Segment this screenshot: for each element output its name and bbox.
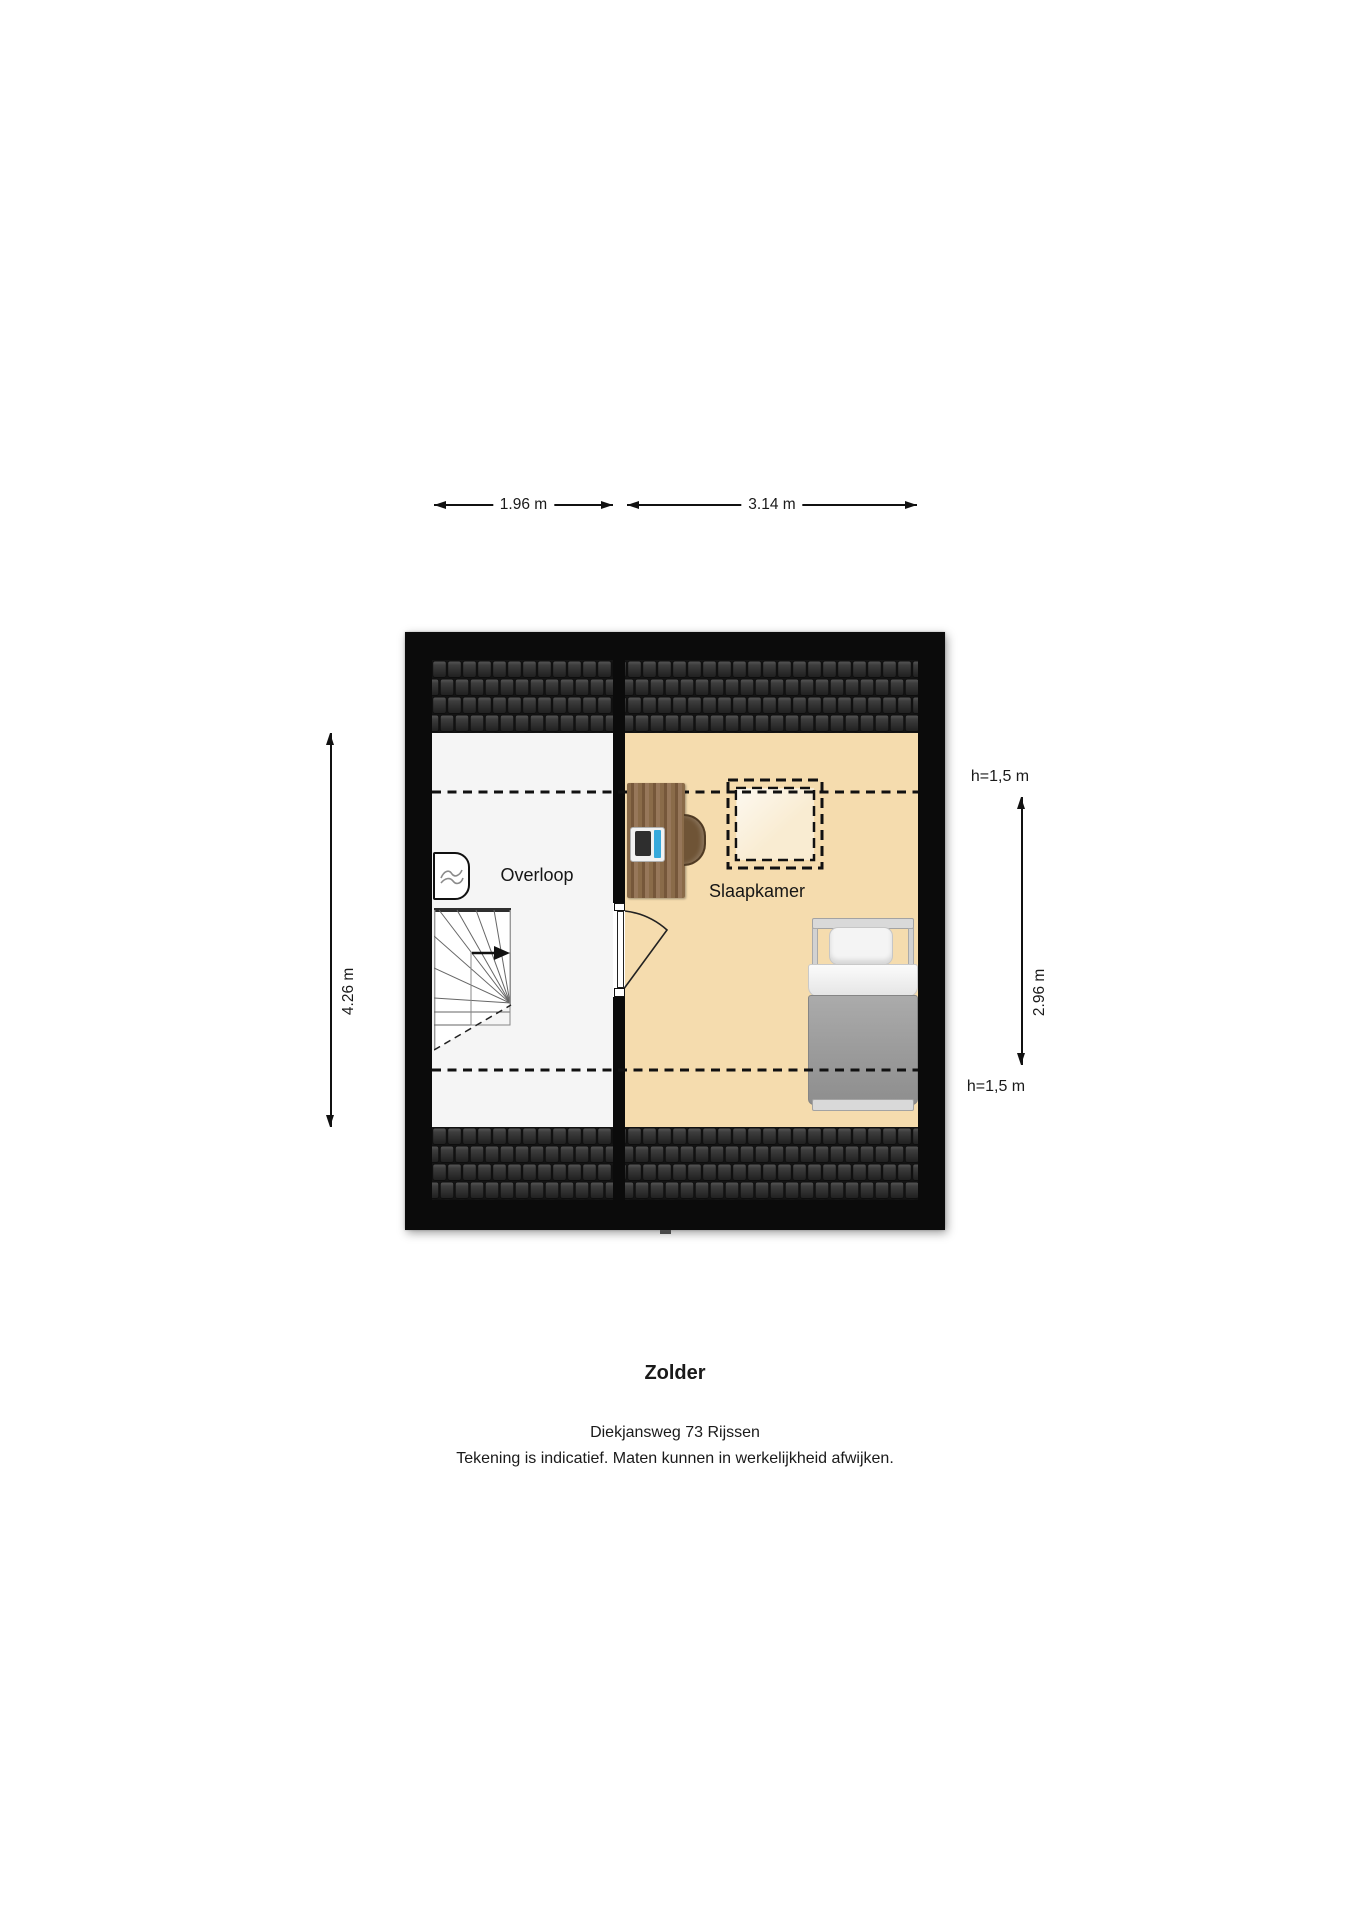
arrow-left-icon [627, 501, 639, 509]
room-label-slaapkamer: Slaapkamer [697, 881, 817, 902]
arrow-down-icon [1017, 1053, 1025, 1065]
door-jamb-bottom [614, 988, 625, 997]
bed-blanket [808, 995, 918, 1105]
desk [627, 783, 685, 898]
page: 1.96 m 3.14 m 4.26 m 2.96 m h=1,5 m h=1,… [0, 0, 1358, 1920]
bed-pillow [829, 927, 893, 965]
floor-plan: Overloop Slaapkamer [405, 632, 945, 1230]
arrow-down-icon [326, 1115, 334, 1127]
ventilation-icon [437, 862, 467, 892]
footer: Zolder Diekjansweg 73 Rijssen Tekening i… [285, 1362, 1065, 1482]
ventilation-unit [433, 852, 470, 900]
stairs-area [434, 910, 511, 1050]
laptop [630, 827, 665, 862]
dimension-label: 3.14 m [741, 496, 802, 514]
door-leaf [617, 911, 624, 988]
arrow-right-icon [905, 501, 917, 509]
bed [808, 918, 918, 1113]
arrow-right-icon [601, 501, 613, 509]
dimension-line [1021, 797, 1023, 1065]
dimension-top-slaapkamer: 3.14 m [627, 499, 917, 511]
room-label-overloop: Overloop [485, 865, 589, 886]
arrow-left-icon [434, 501, 446, 509]
headroom-label-bottom: h=1,5 m [950, 1078, 1042, 1096]
roof-tiles-bottom [432, 1127, 918, 1200]
headroom-label-top: h=1,5 m [955, 768, 1045, 786]
dimension-line [330, 733, 332, 1127]
dimension-left-depth: 4.26 m [325, 733, 337, 1127]
dimension-top-overloop: 1.96 m [434, 499, 613, 511]
floor-title: Zolder [285, 1362, 1065, 1385]
arrow-up-icon [1017, 797, 1025, 809]
bed-footboard [812, 1099, 914, 1111]
disclaimer: Tekening is indicatief. Maten kunnen in … [285, 1450, 1065, 1468]
laptop-accent [654, 830, 661, 858]
dimension-label: 1.96 m [493, 496, 554, 514]
bed-sheet [808, 964, 918, 997]
dimension-right-headroom-span: 2.96 m [1016, 797, 1028, 1065]
door-jamb-top [614, 903, 625, 911]
arrow-up-icon [326, 733, 334, 745]
dimension-label: 2.96 m [1031, 962, 1049, 1023]
staircase [434, 908, 512, 1054]
roof-tiles-top [432, 660, 918, 733]
dimension-label: 4.26 m [340, 961, 358, 1022]
address: Diekjansweg 73 Rijssen [285, 1424, 1065, 1442]
wall-notch [660, 1230, 671, 1234]
laptop-screen [635, 831, 651, 856]
